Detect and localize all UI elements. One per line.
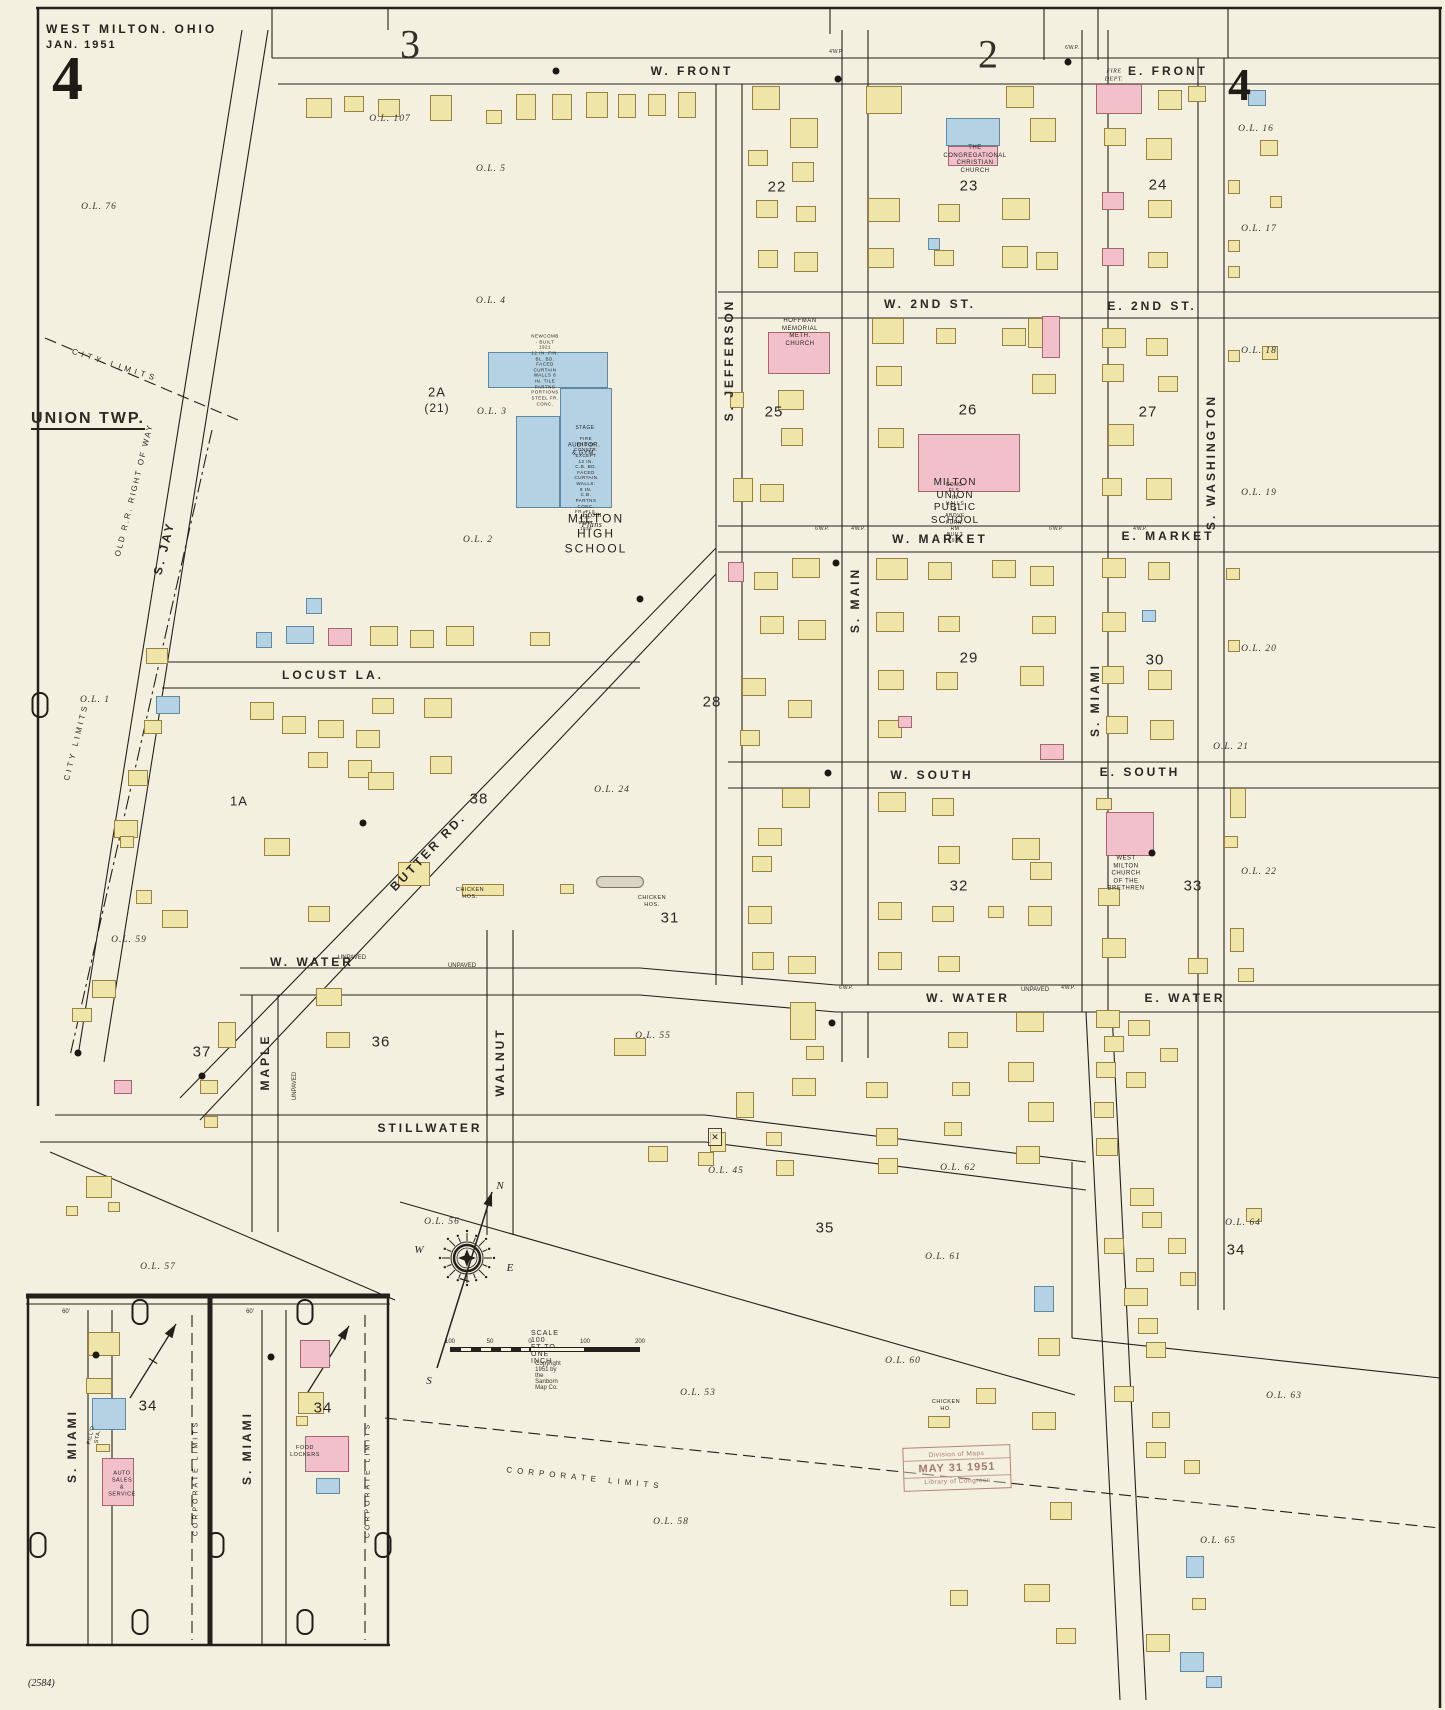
building: [792, 162, 814, 182]
building: [1146, 1634, 1170, 1652]
place-label: HOFFMAN MEMORIALMETH. CHURCH: [782, 318, 818, 348]
building: [1012, 838, 1040, 860]
building: [948, 1032, 968, 1048]
place-label: NEWCOMB - BUILT 192112 IN. FIN. BL. BD. …: [531, 333, 559, 406]
building: [1180, 1272, 1196, 1286]
building: [1228, 350, 1240, 362]
misc-label: UNION TWP.: [31, 410, 145, 428]
building: [200, 1080, 218, 1094]
building: [932, 798, 954, 816]
building: [1186, 1556, 1204, 1578]
building: [1042, 316, 1060, 358]
place-label: CONC. FLS. IN HALLS & ABOVE FURN. RM BUI…: [945, 482, 965, 545]
building: [1096, 1138, 1118, 1156]
building: [66, 1206, 78, 1216]
building: [1126, 1072, 1146, 1088]
building: [1038, 1338, 1060, 1356]
building: [596, 876, 644, 888]
street-label: E. WATER: [1144, 991, 1225, 1005]
street-label: STILLWATER: [377, 1121, 482, 1135]
place-label: CHICKEN HOS.: [638, 895, 666, 909]
building: [1114, 1386, 1134, 1402]
building: [760, 484, 784, 502]
building: [1030, 118, 1056, 142]
building: [162, 910, 188, 928]
building: [866, 1082, 888, 1098]
oval-marker: [132, 1299, 149, 1325]
building: [114, 1080, 132, 1094]
building: [1102, 478, 1122, 496]
building: [516, 94, 536, 120]
building: [1020, 666, 1044, 686]
building: [782, 788, 810, 808]
building: [1130, 1188, 1154, 1206]
scale-bar-segment: [450, 1347, 530, 1352]
building: [868, 198, 900, 222]
map-lines-layer: [0, 0, 1445, 1710]
building: [516, 416, 560, 508]
misc-label: UNPAVED: [1021, 987, 1049, 993]
street-label: LOCUST LA.: [282, 668, 384, 682]
block-number: 36: [372, 1034, 391, 1051]
place-label: FIRE DEPT.: [1105, 69, 1124, 84]
building: [1028, 1102, 1054, 1122]
building: [92, 980, 116, 998]
misc-label: 6'W.P.: [839, 985, 853, 991]
block-number: 30: [1146, 652, 1165, 669]
building: [1228, 180, 1240, 194]
building: [878, 952, 902, 970]
building: [1108, 424, 1134, 446]
building: [344, 96, 364, 112]
compass-letter-s: S: [426, 1375, 432, 1387]
scale-bar-segment: [585, 1347, 640, 1352]
street-label: E. SOUTH: [1100, 765, 1181, 779]
building: [1184, 1460, 1200, 1474]
outlot-label: O.L. 64: [1225, 1218, 1261, 1228]
building: [1024, 1584, 1050, 1602]
building: [1152, 1412, 1170, 1428]
scale-tick-label: 100: [580, 1339, 590, 1345]
misc-label: 4'W.P.: [829, 49, 843, 55]
building: [92, 1398, 126, 1430]
scale-tick-label: 0: [528, 1339, 531, 1345]
building: [878, 428, 904, 448]
sheet-number-right: 4: [1228, 58, 1251, 111]
building: [1226, 568, 1240, 580]
building: [1142, 1212, 1162, 1228]
building: [1032, 374, 1056, 394]
building: [950, 1590, 968, 1606]
misc-label: 4'W.P.: [851, 526, 865, 532]
sanborn-fire-insurance-map: ✕ NSWEW. FRONTE. FRONTW. 2ND ST.E. 2ND S…: [0, 0, 1445, 1710]
building: [264, 838, 290, 856]
building: [1230, 788, 1246, 818]
utility-dot: [637, 596, 644, 603]
north-arrow-head: [165, 1324, 176, 1338]
scale-tick-label: 100: [445, 1339, 455, 1345]
building: [1124, 1288, 1148, 1306]
building: [992, 560, 1016, 578]
outlot-label: O.L. 19: [1241, 488, 1277, 498]
street-label: W. FRONT: [651, 64, 734, 78]
building: [1102, 364, 1124, 382]
block-number: 37: [193, 1044, 212, 1061]
street-label: E. FRONT: [1128, 64, 1208, 78]
street-label: WALNUT: [493, 1027, 507, 1096]
street-label: S. MIAMI: [65, 1409, 79, 1483]
building: [1158, 90, 1182, 110]
building: [1030, 566, 1054, 586]
building: [760, 616, 784, 634]
building: [1148, 562, 1170, 580]
building: [752, 952, 774, 970]
building: [1146, 338, 1168, 356]
building: [1032, 616, 1056, 634]
building: [218, 1022, 236, 1048]
building: [1224, 836, 1238, 848]
building: [794, 252, 818, 272]
building: [1148, 252, 1168, 268]
outlot-label: O.L. 18: [1241, 346, 1277, 356]
building: [1102, 938, 1126, 958]
building: [1102, 192, 1124, 210]
building: [316, 1478, 340, 1494]
building: [1146, 1442, 1166, 1458]
building: [356, 730, 380, 748]
compass-letter-n: N: [496, 1180, 503, 1192]
building: [1106, 812, 1154, 856]
outlot-label: O.L. 58: [653, 1517, 689, 1527]
building: [796, 206, 816, 222]
building: [120, 836, 134, 848]
utility-dot: [1065, 59, 1072, 66]
building: [748, 150, 768, 166]
compass-rose: [439, 1230, 495, 1286]
oval-marker: [32, 692, 49, 718]
misc-label: UNPAVED: [448, 963, 476, 969]
misc-label: 4'W.P.: [1133, 526, 1147, 532]
utility-dot: [829, 1020, 836, 1027]
utility-dot: [93, 1352, 100, 1359]
building: [1228, 240, 1240, 252]
block-number: 31: [661, 910, 680, 927]
building: [648, 94, 666, 116]
north-arrow-crossbar: [149, 1358, 157, 1363]
utility-dot: [553, 68, 560, 75]
building: [308, 906, 330, 922]
outlot-label: O.L. 55: [635, 1031, 671, 1041]
library-of-congress-stamp: Division of Maps MAY 31 1951 Library of …: [902, 1444, 1011, 1492]
building: [1036, 252, 1058, 270]
map-title-city: WEST MILTON. OHIO: [46, 22, 217, 36]
utility-dot: [833, 560, 840, 567]
block-number: 32: [950, 878, 969, 895]
building: [1032, 1412, 1056, 1430]
building: [586, 92, 608, 118]
building: [733, 478, 753, 502]
building: [1094, 1102, 1114, 1118]
building: [788, 956, 816, 974]
building: [868, 248, 894, 268]
building: [136, 890, 152, 904]
street-edge-line: [400, 1202, 1075, 1395]
misc-label: 6'W.P.: [815, 526, 829, 532]
building: [1228, 640, 1240, 652]
building: [486, 110, 502, 124]
block-number: 34: [139, 1398, 158, 1415]
street-label: W. WATER: [926, 991, 1010, 1005]
outlot-label: O.L. 53: [680, 1388, 716, 1398]
building: [318, 720, 344, 738]
sheet-number-left: 4: [52, 44, 83, 115]
place-label: CHICKEN HOS.: [456, 887, 484, 901]
building: [282, 716, 306, 734]
building: [752, 856, 772, 872]
building: [1150, 720, 1174, 740]
building: [1050, 1502, 1072, 1520]
outlot-label: O.L. 56: [424, 1217, 460, 1227]
building: [430, 95, 452, 121]
block-number: 29: [960, 650, 979, 667]
building: [370, 626, 398, 646]
building: [876, 558, 908, 580]
utility-dot: [268, 1354, 275, 1361]
street-label: MAPLE: [258, 1034, 272, 1091]
building: [1260, 140, 1278, 156]
building: [938, 204, 960, 222]
street-label: S. MIAMI: [1088, 663, 1102, 737]
adjacent-sheet-number: 3: [400, 21, 420, 68]
building: [108, 1202, 120, 1212]
building: [748, 906, 772, 924]
building: [156, 696, 180, 714]
building: [790, 118, 818, 148]
building: [876, 1128, 898, 1146]
building: [878, 902, 902, 920]
building: [938, 616, 960, 632]
building: [1238, 968, 1254, 982]
street-label: S. WASHINGTON: [1204, 394, 1218, 530]
building: [758, 828, 782, 846]
building: [1128, 1020, 1150, 1036]
building: [988, 906, 1004, 918]
building: [1104, 1036, 1124, 1052]
place-label: WEST MILTONCHURCH OF THEBRETHREN: [1107, 855, 1144, 893]
utility-dot: [835, 76, 842, 83]
outlot-label: O.L. 107: [369, 114, 411, 124]
building: [618, 94, 636, 118]
building: [952, 1082, 970, 1096]
oval-marker: [30, 1532, 47, 1558]
place-label: FIRE PROOF CONSTR. EXCEPT12 IN. C.B. BD.…: [574, 436, 598, 532]
block-number: 23: [960, 178, 979, 195]
block-number: 34: [314, 1400, 333, 1417]
building: [328, 628, 352, 646]
building: [256, 632, 272, 648]
scale-tick-label: 200: [635, 1339, 645, 1345]
oval-marker: [208, 1532, 225, 1558]
building: [1028, 906, 1052, 926]
building: [1006, 86, 1034, 108]
building: [530, 632, 550, 646]
building: [936, 328, 956, 344]
building: [1034, 1286, 1054, 1312]
building: [306, 98, 332, 118]
building: [368, 772, 394, 790]
building: [552, 94, 572, 120]
building: [976, 1388, 996, 1404]
block-number: 24: [1149, 177, 1168, 194]
outlot-label: O.L. 65: [1200, 1536, 1236, 1546]
building: [946, 118, 1000, 146]
place-label: AUTO SALES& SERVICE: [108, 1470, 136, 1498]
building: [1160, 1048, 1178, 1062]
outlot-label: O.L. 4: [476, 296, 506, 306]
outlot-label: O.L. 16: [1238, 124, 1274, 134]
block-number: 27: [1139, 404, 1158, 421]
block-number: 2A: [428, 385, 446, 400]
building: [1102, 558, 1126, 578]
building: [728, 562, 744, 582]
building: [1030, 862, 1052, 880]
compass-letter-e: E: [507, 1262, 514, 1274]
building: [1040, 744, 1064, 760]
scale-copyright: Copyright 1951 by the Sanborn Map Co.: [535, 1361, 561, 1391]
building: [1104, 128, 1126, 146]
building: [1096, 798, 1112, 810]
building: [1096, 84, 1142, 114]
building: [1016, 1146, 1040, 1164]
street-edge-line: [1072, 1338, 1440, 1378]
outlot-label: O.L. 20: [1241, 644, 1277, 654]
building: [876, 612, 904, 632]
building: [1188, 86, 1206, 102]
building: [1188, 958, 1208, 974]
scale-tick-label: 50: [487, 1339, 494, 1345]
street-label: W. SOUTH: [890, 768, 973, 782]
building: [790, 1002, 816, 1040]
building: [878, 792, 906, 812]
building: [1016, 1012, 1044, 1032]
building: [86, 1378, 112, 1394]
building: [300, 1340, 330, 1368]
block-number: 28: [703, 694, 722, 711]
place-label: THE CONGREGATIONALCHRISTIAN CHURCH: [943, 145, 1006, 175]
building: [678, 92, 696, 118]
block-number: 38: [470, 791, 489, 808]
building: [928, 238, 940, 250]
utility-dot: [75, 1050, 82, 1057]
misc-label: 60': [246, 1309, 254, 1315]
building: [1096, 1010, 1120, 1028]
building: [756, 200, 778, 218]
oval-marker: [375, 1532, 392, 1558]
building: [736, 1092, 754, 1118]
building: [372, 698, 394, 714]
building: [128, 770, 148, 786]
block-number: 25: [765, 404, 784, 421]
building: [876, 366, 902, 386]
street-edge-line: [1112, 1012, 1146, 1700]
building: [1192, 1598, 1206, 1610]
utility-dot: [199, 1073, 206, 1080]
street-label: S. MIAMI: [240, 1411, 254, 1485]
utility-dot: [360, 820, 367, 827]
building: [878, 1158, 898, 1174]
misc-label: 6'W.P.: [1065, 45, 1079, 51]
building: [792, 558, 820, 578]
building: [86, 1176, 112, 1198]
building: [1008, 1062, 1034, 1082]
building: [424, 698, 452, 718]
building: [144, 720, 162, 734]
building: [296, 1416, 308, 1426]
building: [1136, 1258, 1154, 1272]
block-number: 34: [1227, 1242, 1246, 1259]
building: [1002, 328, 1026, 346]
building: [1096, 1062, 1116, 1078]
building: [932, 906, 954, 922]
building: [792, 1078, 816, 1096]
building: [938, 846, 960, 864]
building: [938, 956, 960, 972]
street-label: W. MARKET: [892, 532, 988, 546]
outlot-label: O.L. 2: [463, 535, 493, 545]
oval-marker: [297, 1609, 314, 1635]
building: [1148, 200, 1172, 218]
outlot-label: O.L. 24: [594, 785, 630, 795]
building: [1146, 138, 1172, 160]
block-number: (21): [424, 401, 449, 415]
outlot-label: O.L. 5: [476, 164, 506, 174]
building: [446, 626, 474, 646]
outlot-label: O.L. 45: [708, 1166, 744, 1176]
building: [1180, 1652, 1204, 1672]
building: [944, 1122, 962, 1136]
outlot-label: O.L. 57: [140, 1262, 176, 1272]
block-number: 26: [959, 402, 978, 419]
building: [1002, 246, 1028, 268]
building: [560, 884, 574, 894]
building: [250, 702, 274, 720]
building: [742, 678, 766, 696]
street-edge-line: [50, 1152, 395, 1300]
utility-dot: [1149, 850, 1156, 857]
building: [1228, 266, 1240, 278]
building: [1102, 612, 1126, 632]
compass-letter-w: W: [414, 1244, 423, 1256]
misc-label: 4'W.P.: [1061, 985, 1075, 991]
building: [410, 630, 434, 648]
block-number: 22: [768, 179, 787, 196]
adjacent-sheet-number: 2: [978, 31, 998, 78]
building: [1270, 196, 1282, 208]
misc-label: CORPORATE LIMITS: [365, 1422, 372, 1538]
building: [72, 1008, 92, 1022]
building: [146, 648, 168, 664]
outlot-label: O.L. 22: [1241, 867, 1277, 877]
building: [204, 1116, 218, 1128]
outlot-label: O.L. 21: [1213, 742, 1249, 752]
print-number: (2584): [28, 1678, 55, 1689]
building: [740, 730, 760, 746]
north-arrow-head: [484, 1192, 493, 1207]
building: [1102, 328, 1126, 348]
building: [776, 1160, 794, 1176]
building: [430, 756, 452, 774]
misc-label: UNPAVED: [338, 955, 366, 961]
